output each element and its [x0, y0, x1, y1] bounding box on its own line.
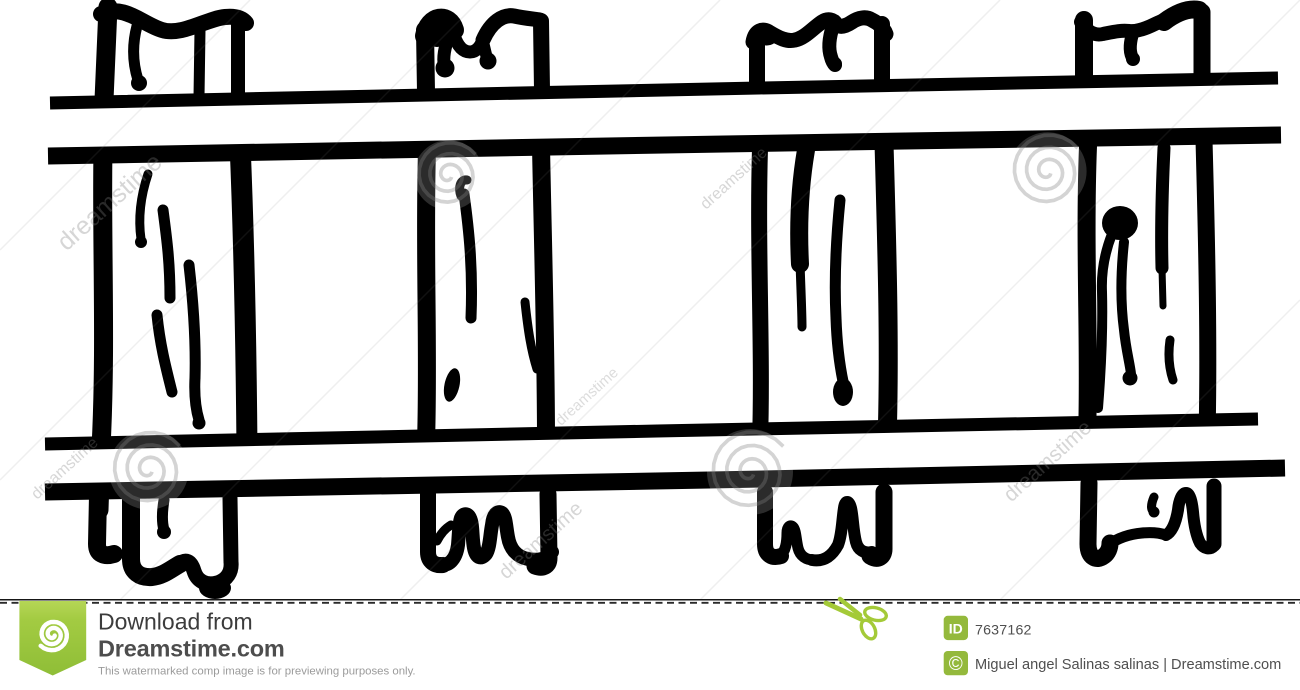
svg-text:7637162: 7637162	[975, 623, 1032, 639]
svg-text:©: ©	[949, 654, 963, 675]
svg-text:ID: ID	[949, 621, 963, 637]
svg-text:Dreamstime.com: Dreamstime.com	[98, 636, 285, 662]
svg-text:Download from: Download from	[98, 609, 253, 635]
svg-text:This watermarked comp image is: This watermarked comp image is for previ…	[98, 666, 416, 678]
svg-text:Miguel angel Salinas salinas |: Miguel angel Salinas salinas | Dreamstim…	[975, 657, 1281, 673]
